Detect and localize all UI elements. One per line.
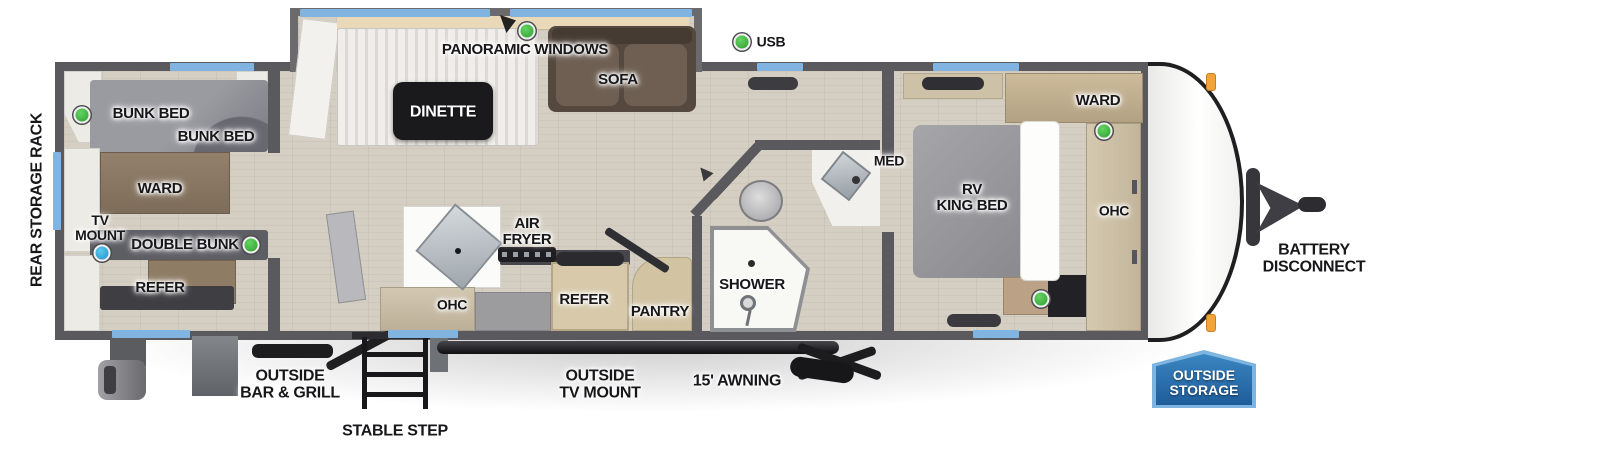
bunkroom-corner-cabinet-bl (64, 255, 100, 331)
kitchen-counter-gray (475, 292, 551, 331)
bedroom-wall-lower (882, 232, 894, 331)
griddle-burners (502, 252, 552, 257)
awning-rail (437, 341, 839, 354)
double-bunk-green-marker (243, 237, 260, 254)
rear-storage-rack-label: REAR STORAGE RACK (28, 113, 45, 287)
sofa-cushion-right (624, 44, 687, 106)
dinette-table (393, 82, 493, 140)
toilet (739, 180, 783, 222)
bedroom-bench (947, 314, 1001, 327)
clearance-light-bottom (1206, 314, 1216, 332)
bedroom-top-window (933, 63, 1019, 71)
tv-mount-blue-marker (94, 245, 111, 262)
slide-window-left (300, 9, 490, 17)
bedroom-wall-upper (882, 71, 894, 157)
slide-window-right (510, 9, 692, 17)
a-frame-hitch (1256, 180, 1304, 236)
bedroom-top-dark-bar (922, 77, 984, 90)
refer-top-vent (556, 252, 624, 266)
bunkroom-ward-cabinet (100, 152, 230, 214)
bunkroom-wall-upper (268, 71, 280, 153)
entry-door-window (388, 330, 458, 338)
bedroom-nightstand-green-marker (1033, 291, 1050, 308)
bed-folded-section (1020, 121, 1060, 281)
double-bunk-bed (90, 230, 268, 260)
stable-step-label: STABLE STEP (342, 422, 448, 439)
kitchen-ohc-counter (380, 287, 475, 331)
clearance-light-top (1206, 73, 1216, 91)
usb-label: USB (757, 34, 786, 49)
step-rung-3 (364, 392, 426, 397)
front-cap (1148, 62, 1244, 342)
tongue-jack-post (1246, 168, 1260, 246)
hall-ohc-bar-left (748, 77, 798, 90)
bedroom-ward-cabinet (1005, 73, 1143, 123)
step-rung-1 (364, 352, 426, 357)
bumper-panel (192, 336, 238, 396)
sofa-cushion-left (556, 44, 619, 106)
hall-top-window (757, 63, 803, 71)
med-faucet-dot (852, 176, 860, 184)
bathroom-left-wall (692, 216, 702, 331)
sink-drain-dot (455, 248, 461, 254)
bedroom-bottom-window (973, 330, 1019, 338)
shower-head-icon (740, 295, 756, 311)
kitchen-refer-box (551, 262, 629, 331)
bunkroom-top-window (170, 63, 254, 71)
bunkroom-bottom-window (112, 330, 190, 338)
ohc-handle-top (1132, 180, 1137, 194)
bunk-bed-green-marker (74, 107, 91, 124)
rear-wall-window (53, 152, 61, 230)
bedroom-foot-dark-box (1048, 275, 1086, 317)
panoramic-window-green-marker (519, 23, 536, 40)
usb-green-marker (734, 34, 751, 51)
grill-shelf-bar (252, 344, 333, 358)
rv-king-bed-mattress (913, 125, 1025, 278)
bunkroom-refer-counter (100, 286, 234, 310)
battery-disconnect-label: BATTERY DISCONNECT (1263, 242, 1366, 277)
sofa-back (552, 28, 692, 44)
bedroom-ohc-cabinet (1086, 123, 1141, 331)
bunk-bed (90, 80, 268, 152)
bunkroom-wall-lower (268, 258, 280, 331)
step-rung-2 (364, 372, 426, 377)
bathroom-top-wall (755, 140, 880, 150)
shower-drain-dot (748, 260, 755, 267)
spare-tire-hub (104, 366, 116, 394)
rv-floorplan: OUTSIDE STORAGE REAR STORAGE RACK BUNK B… (0, 0, 1600, 469)
hitch-coupler (1298, 197, 1326, 212)
bedroom-ward-green-marker (1096, 123, 1113, 140)
ohc-handle-bottom (1132, 250, 1137, 264)
